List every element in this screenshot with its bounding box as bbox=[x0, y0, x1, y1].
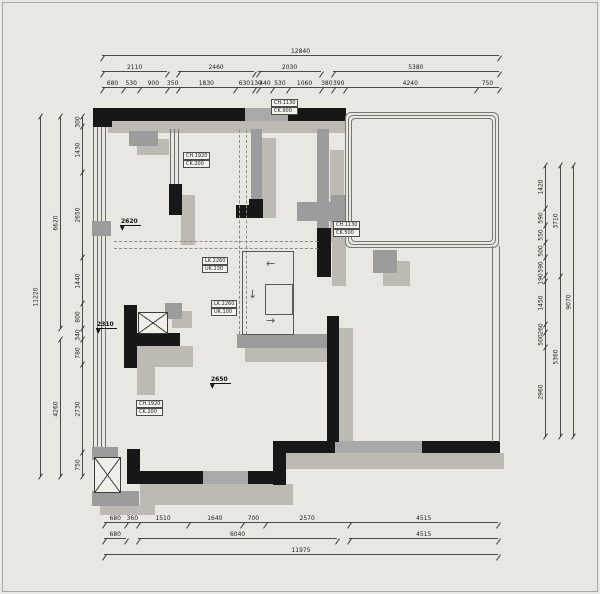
dashed-guide bbox=[239, 130, 240, 334]
wall-opening bbox=[333, 441, 423, 453]
height-label: CH.1130 CK.900 bbox=[271, 99, 298, 115]
pillar bbox=[373, 250, 397, 273]
shadow bbox=[137, 367, 155, 395]
dimension-segment: 380 bbox=[321, 77, 333, 90]
window bbox=[170, 129, 182, 184]
wall-segment bbox=[93, 108, 245, 121]
dimension-gap bbox=[126, 528, 138, 541]
dimension-value: 1430 bbox=[75, 142, 82, 157]
dimension-value: 500 bbox=[538, 245, 545, 256]
height-label: CH.1920 CK.200 bbox=[136, 400, 163, 416]
dim-top-groups: 2110246020305380 bbox=[102, 61, 499, 74]
duct-shaft bbox=[94, 457, 121, 493]
dimension-gap bbox=[167, 61, 178, 74]
elevator-shaft bbox=[138, 312, 168, 334]
window-sill bbox=[92, 491, 139, 506]
level-marker: 2620 ▼ bbox=[120, 218, 141, 231]
dim-left-overall: 11220 bbox=[28, 117, 44, 477]
dim-top-overall: 12840 bbox=[102, 45, 499, 58]
dimension-value: 1420 bbox=[538, 180, 545, 195]
level-marker: 2310 ▼ bbox=[96, 321, 117, 334]
shadow bbox=[140, 484, 293, 505]
level-marker: 2650 ▼ bbox=[210, 376, 231, 389]
dimension-value: 440 bbox=[259, 80, 270, 87]
wall-segment bbox=[169, 184, 182, 215]
window bbox=[93, 236, 109, 447]
level-marker-triangle-icon: ▼ bbox=[210, 384, 231, 389]
level-marker-triangle-icon: ▼ bbox=[120, 226, 141, 231]
height-label-line2: UK.230 bbox=[202, 265, 228, 273]
dimension-value: 9070 bbox=[566, 294, 573, 309]
dimension-value: 1060 bbox=[297, 80, 312, 87]
height-label-line1: CH.1130 bbox=[333, 221, 360, 229]
dashed-guide bbox=[114, 248, 318, 249]
floorplan-canvas: { "colors":{"background":"#e9e7e2","wall… bbox=[0, 0, 600, 594]
shadow bbox=[339, 328, 353, 441]
arrow-left-icon: ← bbox=[266, 259, 275, 269]
dim-bottom-groups: 68060404515 bbox=[104, 528, 498, 541]
dimension-value: 500 bbox=[538, 335, 545, 346]
dimension-value: 2570 bbox=[300, 515, 315, 522]
level-marker-triangle-icon: ▼ bbox=[96, 329, 117, 334]
dimension-segment: 390 bbox=[333, 77, 345, 90]
height-label-line2: CK.900 bbox=[271, 107, 298, 115]
dimension-value: 1510 bbox=[155, 515, 170, 522]
wall-segment bbox=[124, 333, 180, 346]
arrow-right-icon: → bbox=[266, 316, 275, 326]
wall-segment bbox=[317, 228, 331, 277]
dimension-segment: 680 bbox=[102, 77, 123, 90]
dimension-segment: 900 bbox=[139, 77, 167, 90]
shadow bbox=[262, 138, 276, 218]
dimension-value: 1440 bbox=[75, 273, 82, 288]
dimension-segment: 1430 bbox=[70, 127, 86, 173]
dimension-value: 2030 bbox=[282, 64, 297, 71]
dimension-segment: 750 bbox=[476, 77, 499, 90]
dimension-value: 340 bbox=[75, 329, 82, 340]
dimension-segment: 12840 bbox=[102, 45, 499, 58]
dimension-segment: 530 bbox=[272, 77, 288, 90]
dimension-segment: 1830 bbox=[178, 77, 235, 90]
dimension-value: 6620 bbox=[53, 216, 60, 231]
dimension-segment: 4515 bbox=[349, 512, 498, 525]
dimension-value: 6040 bbox=[230, 531, 245, 538]
dim-left-detail: 3001430265014408003407802730750 bbox=[70, 117, 86, 477]
partition-wall bbox=[251, 129, 262, 205]
dimension-value: 1640 bbox=[207, 515, 222, 522]
wall-opening bbox=[200, 471, 248, 484]
dimension-value: 2730 bbox=[75, 402, 82, 417]
dimension-segment: 2110 bbox=[102, 61, 167, 74]
wall-segment bbox=[127, 471, 203, 484]
dimension-segment: 530 bbox=[123, 77, 139, 90]
shadow bbox=[286, 453, 504, 469]
dim-left-groups: 66204260 bbox=[48, 117, 64, 477]
dimension-segment: 680 bbox=[104, 528, 126, 541]
partition-wall bbox=[297, 202, 331, 221]
dimension-segment: 1440 bbox=[70, 258, 86, 304]
window bbox=[93, 127, 109, 221]
dimension-value: 3710 bbox=[553, 214, 560, 229]
dimension-value: 2110 bbox=[127, 64, 142, 71]
wall-corner bbox=[93, 108, 112, 127]
dimension-segment: 2570 bbox=[265, 512, 350, 525]
height-label-line2: CK.200 bbox=[183, 160, 210, 168]
height-label-line1: LK.2260 bbox=[202, 257, 228, 265]
dimension-segment: 2030 bbox=[258, 61, 321, 74]
dimension-value: 12840 bbox=[291, 48, 310, 55]
dimension-segment: 700 bbox=[242, 512, 265, 525]
dimension-value: 530 bbox=[274, 80, 285, 87]
dimension-value: 680 bbox=[109, 531, 120, 538]
sliding-door-panel bbox=[265, 284, 293, 315]
wall-segment bbox=[422, 441, 500, 453]
dimension-value: 750 bbox=[482, 80, 493, 87]
dimension-segment: 1060 bbox=[288, 77, 321, 90]
dimension-gap bbox=[337, 528, 350, 541]
height-label-line1: CH.1920 bbox=[136, 400, 163, 408]
shadow bbox=[137, 346, 193, 367]
dim-top-detail: 6805309003501830630130440530106038039042… bbox=[102, 77, 499, 90]
height-label-line1: CH.1130 bbox=[271, 99, 298, 107]
shadow bbox=[332, 238, 346, 286]
height-label: LK.2260 UK.100 bbox=[211, 300, 237, 316]
dimension-segment: 6040 bbox=[138, 528, 337, 541]
dim-bottom-overall: 11975 bbox=[104, 544, 498, 557]
dimension-value: 2960 bbox=[538, 385, 545, 400]
dim-right-overall: 9070 bbox=[561, 166, 577, 437]
dimension-segment: 6620 bbox=[48, 117, 64, 329]
partition-wall bbox=[237, 334, 328, 348]
dimension-value: 5360 bbox=[553, 349, 560, 364]
dimension-value: 350 bbox=[167, 80, 178, 87]
dimension-value: 630 bbox=[239, 80, 250, 87]
dimension-segment: 9070 bbox=[561, 166, 577, 437]
dimension-value: 680 bbox=[107, 80, 118, 87]
dimension-value: 1450 bbox=[538, 296, 545, 311]
dimension-value: 550 bbox=[538, 229, 545, 240]
dimension-value: 11975 bbox=[291, 547, 310, 554]
dimension-segment: 11220 bbox=[28, 117, 44, 477]
dimension-value: 590 bbox=[538, 261, 545, 272]
dimension-value: 2650 bbox=[75, 207, 82, 222]
dimension-segment: 11975 bbox=[104, 544, 498, 557]
window-sill bbox=[92, 221, 111, 236]
dim-bottom-detail: 6803601510164070025704515 bbox=[104, 512, 498, 525]
dimension-segment: 1640 bbox=[188, 512, 242, 525]
dimension-value: 4240 bbox=[403, 80, 418, 87]
shadow bbox=[181, 195, 195, 245]
height-label: CH.1130 CK.500 bbox=[333, 221, 360, 237]
wall-segment bbox=[236, 205, 263, 218]
dimension-segment: 2460 bbox=[178, 61, 254, 74]
dimension-value: 2460 bbox=[208, 64, 223, 71]
wall-segment bbox=[273, 441, 335, 453]
dimension-value: 1830 bbox=[199, 80, 214, 87]
bay-window bbox=[345, 112, 499, 248]
dimension-value: 360 bbox=[127, 515, 138, 522]
dimension-segment: 4515 bbox=[349, 528, 498, 541]
shadow bbox=[100, 505, 155, 515]
height-label: CH.1920 CK.200 bbox=[183, 152, 210, 168]
dimension-segment: 4260 bbox=[48, 340, 64, 477]
dimension-value: 5380 bbox=[408, 64, 423, 71]
dimension-value: 700 bbox=[248, 515, 259, 522]
dimension-segment: 440 bbox=[258, 77, 272, 90]
height-label-line1: CH.1920 bbox=[183, 152, 210, 160]
glass-wall bbox=[492, 246, 500, 442]
height-label-line2: CK.500 bbox=[333, 229, 360, 237]
shadow bbox=[245, 348, 337, 362]
dim-right-detail: 142059055050059019014502605002960 bbox=[533, 166, 549, 437]
pillar bbox=[129, 131, 158, 146]
dimension-value: 780 bbox=[75, 347, 82, 358]
height-label: LK.2260 UK.230 bbox=[202, 257, 228, 273]
dimension-segment: 350 bbox=[167, 77, 178, 90]
dimension-value: 590 bbox=[538, 212, 545, 223]
wall-segment bbox=[327, 316, 339, 442]
dimension-segment: 2960 bbox=[533, 348, 549, 437]
dimension-value: 4515 bbox=[416, 531, 431, 538]
dimension-value: 4260 bbox=[53, 401, 60, 416]
dimension-gap bbox=[321, 61, 333, 74]
height-label-line1: LK.2260 bbox=[211, 300, 237, 308]
height-label-line2: CK.200 bbox=[136, 408, 163, 416]
dimension-value: 4515 bbox=[416, 515, 431, 522]
dashed-guide bbox=[114, 241, 318, 242]
partition-wall bbox=[331, 195, 345, 223]
dimension-segment: 2650 bbox=[70, 173, 86, 258]
dimension-segment: 4240 bbox=[345, 77, 476, 90]
dimension-value: 11220 bbox=[33, 287, 40, 306]
dimension-segment: 2730 bbox=[70, 365, 86, 453]
dimension-value: 750 bbox=[75, 459, 82, 470]
dimension-segment: 1420 bbox=[533, 166, 549, 209]
dimension-segment: 5380 bbox=[333, 61, 499, 74]
dimension-value: 800 bbox=[75, 311, 82, 322]
dimension-value: 680 bbox=[109, 515, 120, 522]
dimension-value: 390 bbox=[333, 80, 344, 87]
dimension-value: 900 bbox=[148, 80, 159, 87]
height-label-line2: UK.100 bbox=[211, 308, 237, 316]
dimension-value: 380 bbox=[321, 80, 332, 87]
dimension-value: 530 bbox=[125, 80, 136, 87]
dimension-segment: 1450 bbox=[533, 282, 549, 326]
arrow-down-icon: ↓ bbox=[248, 290, 257, 300]
